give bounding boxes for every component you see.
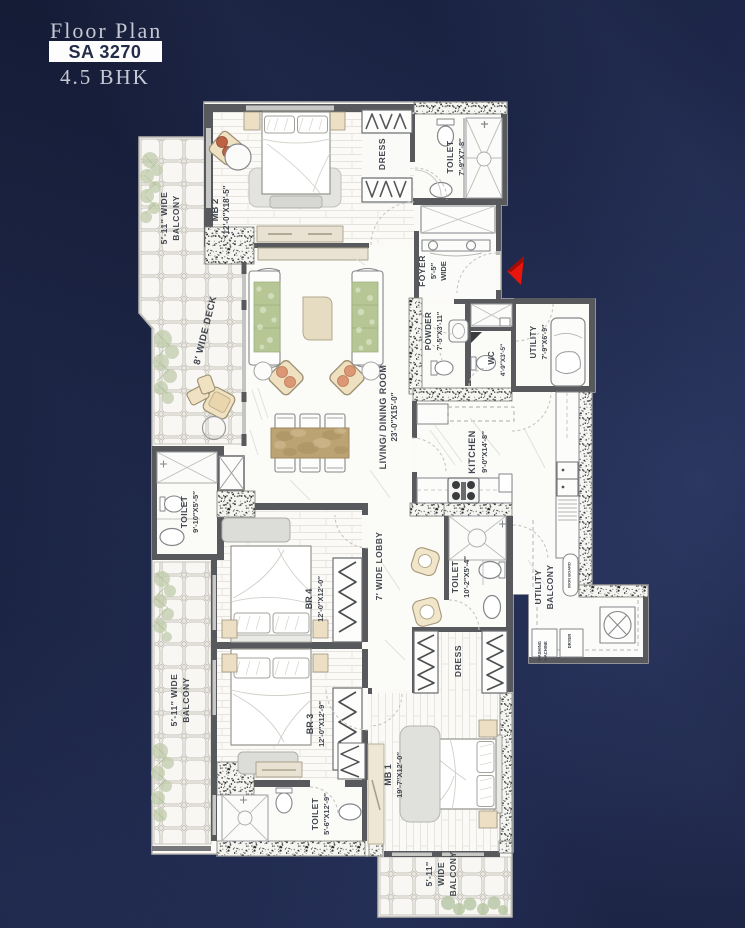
svg-text:TOILET: TOILET <box>179 495 189 528</box>
svg-text:5′-5″: 5′-5″ <box>429 262 438 279</box>
svg-text:23′-0″X15′-0″: 23′-0″X15′-0″ <box>390 392 399 441</box>
svg-text:12′-0″X12′-9″: 12′-0″X12′-9″ <box>317 701 326 747</box>
svg-text:9′-10″X5′-5″: 9′-10″X5′-5″ <box>191 491 200 533</box>
svg-text:12′-0″X18′-5″: 12′-0″X18′-5″ <box>222 185 231 234</box>
svg-text:KITCHEN: KITCHEN <box>467 430 477 474</box>
svg-text:WASHING: WASHING <box>537 641 542 661</box>
svg-text:DRYER: DRYER <box>567 634 572 649</box>
svg-text:WIDE: WIDE <box>436 862 446 886</box>
svg-text:IRON BOARD: IRON BOARD <box>567 562 572 588</box>
svg-text:POWDER: POWDER <box>424 312 433 350</box>
svg-text:DRESS: DRESS <box>453 645 463 677</box>
svg-text:DRESS: DRESS <box>377 138 387 170</box>
svg-text:BALCONY: BALCONY <box>171 195 181 241</box>
svg-text:TOILET: TOILET <box>310 797 320 830</box>
svg-text:7′ WIDE LOBBY: 7′ WIDE LOBBY <box>374 532 384 601</box>
svg-text:UTILITY: UTILITY <box>533 570 543 605</box>
svg-text:4.5 BHK: 4.5 BHK <box>60 65 150 89</box>
svg-text:SA 3270: SA 3270 <box>69 42 142 62</box>
svg-text:BR 4: BR 4 <box>304 589 314 610</box>
svg-text:10′-2″X5′-4″: 10′-2″X5′-4″ <box>462 556 471 598</box>
svg-text:TOILET: TOILET <box>450 560 460 593</box>
svg-text:BALCONY: BALCONY <box>545 565 555 610</box>
svg-text:19′-7″X12′-0″: 19′-7″X12′-0″ <box>395 752 404 798</box>
svg-text:BR 3: BR 3 <box>305 714 315 735</box>
svg-text:MB 1: MB 1 <box>383 764 393 786</box>
svg-text:12′-0″X12′-0″: 12′-0″X12′-0″ <box>316 576 325 622</box>
svg-text:TOILET: TOILET <box>445 140 455 173</box>
svg-text:UTILITY: UTILITY <box>529 325 538 358</box>
svg-text:4′-9″X3′-5″: 4′-9″X3′-5″ <box>500 344 507 376</box>
svg-text:5′-6″X12′-9″: 5′-6″X12′-9″ <box>322 793 331 835</box>
svg-text:BALCONY: BALCONY <box>448 852 458 897</box>
svg-text:9′-0″X14′-8″: 9′-0″X14′-8″ <box>480 431 489 473</box>
svg-text:LIVING/ DINING ROOM: LIVING/ DINING ROOM <box>378 365 388 470</box>
svg-text:7′-9″X6′-9″: 7′-9″X6′-9″ <box>542 324 549 360</box>
svg-text:7′-9″X7′-8″: 7′-9″X7′-8″ <box>457 138 466 176</box>
svg-text:WIDE: WIDE <box>439 261 448 281</box>
svg-text:5′-11″: 5′-11″ <box>424 861 434 886</box>
svg-text:FOYER: FOYER <box>417 255 427 287</box>
svg-text:7′-5″X3′-11″: 7′-5″X3′-11″ <box>437 311 444 350</box>
svg-text:5′-11″ WIDE: 5′-11″ WIDE <box>159 192 169 245</box>
svg-text:WC: WC <box>487 351 496 365</box>
svg-text:5′-11″ WIDE: 5′-11″ WIDE <box>169 674 179 727</box>
svg-text:BALCONY: BALCONY <box>181 677 191 723</box>
svg-text:MB 2: MB 2 <box>210 199 221 222</box>
svg-text:Floor Plan: Floor Plan <box>50 18 162 43</box>
svg-text:MACHINE: MACHINE <box>543 641 548 661</box>
